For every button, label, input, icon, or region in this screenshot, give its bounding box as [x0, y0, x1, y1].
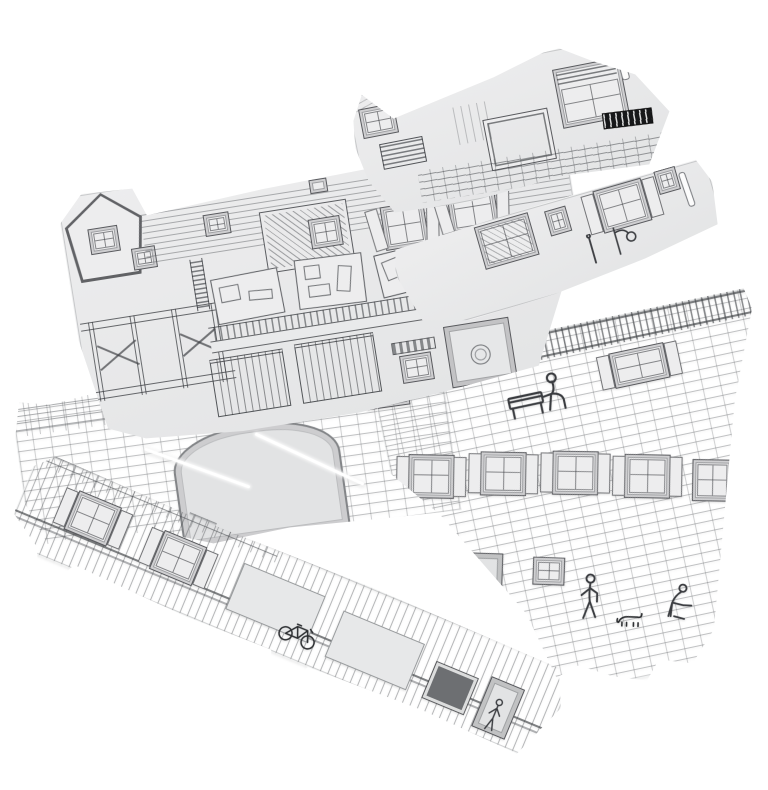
window: [532, 557, 565, 586]
shop-window: [209, 348, 291, 417]
window: [608, 342, 670, 389]
small-window: [544, 206, 572, 237]
dog-figure: [615, 607, 646, 628]
window: [624, 454, 671, 499]
louvered-vent: [379, 136, 427, 170]
walking-figure: [577, 570, 603, 623]
roof-window: [203, 211, 232, 237]
bicycle-icon: [274, 614, 325, 655]
window: [552, 451, 599, 496]
ladder: [189, 258, 210, 311]
round-emblem: [469, 343, 492, 366]
standing-figure: [433, 557, 459, 610]
entrance-door: [461, 552, 503, 623]
cut-slot: [678, 171, 696, 207]
window-row: [408, 448, 729, 518]
window: [308, 215, 344, 250]
chimney: [308, 177, 328, 194]
bench-with-seated-figure: [502, 366, 580, 424]
window: [149, 530, 208, 586]
street-lamp-icon: [607, 219, 646, 262]
blank-opening-panel: [325, 610, 425, 690]
awning-window: [391, 336, 444, 389]
shop-window: [294, 332, 382, 404]
window: [480, 451, 527, 496]
downpipe-mark: [582, 233, 603, 269]
photo-canvas: [0, 0, 768, 790]
window: [64, 490, 123, 546]
dark-window-opening: [423, 662, 478, 714]
window: [692, 459, 733, 502]
window: [408, 454, 455, 499]
window: [87, 225, 121, 255]
room-scene: [294, 252, 368, 310]
pushing-figure: [659, 579, 695, 624]
attic-window: [358, 103, 399, 139]
